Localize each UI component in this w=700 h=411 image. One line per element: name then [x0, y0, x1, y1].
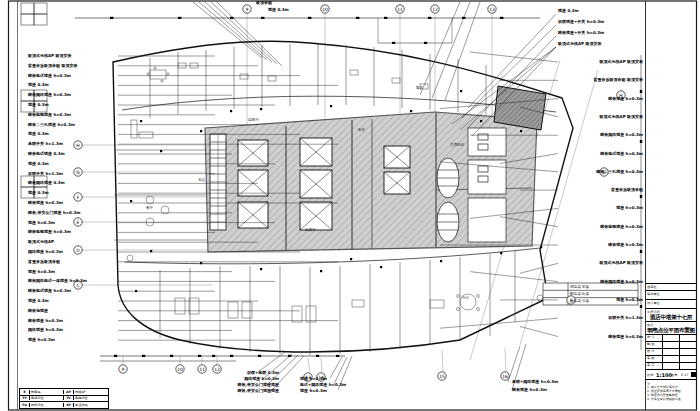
annotation-label: 插座 h=0.3m: [28, 270, 55, 275]
legend-table: E 配电箱 AP 无线AP TP 电话插座 TV 电视插座 TO 网络插座 SP…: [19, 388, 109, 409]
svg-text:E: E: [77, 220, 80, 225]
annotation-label: 暗装网络插座 h=0.3m: [560, 280, 643, 285]
margin-boxes: [21, 3, 47, 198]
grid-bubble: 15: [438, 372, 446, 380]
legend-name: 电话插座: [30, 396, 64, 400]
elevator-shaft: [300, 202, 332, 230]
drawing-name-row: 图名 弱电点位平面布置图: [646, 322, 696, 335]
elevator-shaft: [384, 146, 410, 168]
owner-row: 建设单位: [646, 291, 696, 300]
annotation-label: 单联+网络插座 h=0.3m: [512, 380, 558, 385]
top-dimension-line: [75, 17, 540, 44]
annotation-label: 暗装网络插座 0.3m: [28, 181, 65, 186]
room-label: 办公: [462, 296, 469, 300]
legend-row: TO 网络插座 SP 吸顶音箱: [20, 401, 108, 408]
legend-symbol: TP: [20, 396, 30, 400]
annotation-label: 网络插座 h=0.3m: [28, 250, 63, 255]
annotation-label: 暗装插座+开关 h=0.3m: [558, 31, 604, 36]
grid-bubble: D: [74, 246, 82, 254]
annotation-label: 背景音乐吸顶音箱: [560, 188, 643, 193]
annotation-label: 插座 h=0.3m: [28, 221, 55, 226]
annotation-label: 插座 h=0.3m: [300, 377, 327, 382]
stamp-square: [691, 372, 696, 377]
svg-text:G: G: [76, 170, 80, 175]
annotation-label: 电话+网络插座 h=0.3m: [300, 383, 346, 388]
annotation-label: 双联开关 h=1.3m: [560, 316, 643, 321]
annotation-label: 插座 0.3m: [28, 132, 49, 137]
svg-text:H: H: [76, 143, 79, 148]
grid-bubble: E: [74, 218, 82, 226]
annotation-label: 插座 h=0.3m: [300, 389, 327, 394]
title-block-notes: 注:1. 图中尺寸均以毫米计;2. 点位安装高度详系统图;3. 插座均为安全型插…: [646, 380, 696, 402]
room-label: 机房: [358, 128, 365, 132]
project-name: 酒店中塔第十七层: [647, 314, 695, 322]
svg-text:D: D: [76, 248, 80, 253]
note-table-row: 配电箱 暗装: [570, 292, 589, 296]
annotation-label: 暗装插座 h=0.3m: [560, 97, 643, 102]
room-label: 客房: [416, 86, 423, 90]
annotation-label: 暗装电话插座 h=0.3m: [28, 74, 71, 79]
designer-row: 设计单位: [646, 300, 696, 309]
annotation-label: 双联+单联 0.3m: [196, 371, 279, 376]
annotation-label: 暗装网络电话一体插座 h=0.3m: [28, 279, 87, 284]
annotation-label: 插座 0.3m: [558, 9, 579, 14]
scale-value: 1:100: [656, 372, 670, 378]
svg-text:9: 9: [122, 367, 125, 372]
annotation-label: 插座 h=0.3m: [28, 338, 55, 343]
signature-row: 审 核: [646, 356, 696, 363]
annotation-label: 吸顶音箱: [256, 1, 272, 6]
legend-name: 网络插座: [30, 403, 64, 407]
annotation-label: 网络插座 h=0.3m: [196, 377, 279, 382]
annotation-label: 吸顶式无线AP 吸顶安装: [560, 115, 643, 120]
annotation-label: 插座 0.3m: [28, 299, 49, 304]
annotation-label: 暗装电视插座 h=0.3m: [28, 230, 71, 235]
elevator-shaft: [300, 170, 332, 198]
annotation-label: 双联插座+开关 h=0.3m: [558, 20, 604, 25]
annotation-label: 插座 0.3m: [28, 162, 49, 167]
grid-bubble: 16: [501, 372, 509, 380]
annotation-label: 背景音乐吸顶音箱: [28, 260, 60, 265]
annotation-label: 暗装电话插座 0.3m: [28, 152, 65, 157]
grid-bubble: 10: [176, 365, 184, 373]
annotation-label: 暗装网络插座 h=0.3m: [560, 133, 643, 138]
annotation-label: 插座 0.3m: [28, 83, 49, 88]
legend-row: TP 电话插座 TV 电视插座: [20, 395, 108, 402]
legend-symbol: E: [20, 390, 30, 394]
grid-bubble: G: [74, 168, 82, 176]
signature-row: 制 图: [646, 342, 696, 349]
room-label: 电梯厅: [248, 118, 259, 122]
legend-name: 吸顶音箱: [74, 403, 107, 407]
note-table-row: 弱电箱 明装: [570, 285, 589, 289]
room-label: 空调机房: [450, 143, 464, 147]
signature-row: 校 对: [646, 349, 696, 356]
project-name-row: 工程名称 酒店中塔第十七层: [646, 309, 696, 322]
svg-text:10: 10: [177, 367, 183, 372]
annotation-label: 暗装电视插座 h=0.3m: [28, 113, 71, 118]
grid-bubble: 13: [488, 5, 496, 13]
elevator-shaft: [238, 140, 268, 166]
annotation-label: 吸顶式无线AP 吸顶安装: [558, 42, 601, 47]
annotation-label: 暗装电话插座 h=0.3m: [560, 152, 643, 157]
note-line: 4. 具体位置以装修图为准。: [647, 397, 695, 401]
core-rooms: [468, 128, 506, 242]
svg-text:12: 12: [432, 7, 438, 12]
drawing-sheet: 910111213910111213141516HGFEDCHGF 吸顶式无线A…: [0, 0, 700, 411]
annotation-label: 暗装,带安全门插座插座: [196, 383, 279, 388]
grid-bubble: 9: [119, 365, 127, 373]
annotation-label: 暗装电话插座 h=0.3m: [28, 289, 71, 294]
signature-row: 设 计: [646, 335, 696, 342]
room-label: 餐厅: [146, 206, 153, 210]
annotation-label: 暗装插座 h=0.3m: [28, 319, 63, 324]
annotation-label: 暗装,带安全门插座 h=0.3m: [28, 211, 80, 216]
svg-text:11: 11: [397, 7, 403, 12]
annotation-label: 暗装插座 h=0.3m: [512, 388, 547, 393]
elevator-shaft: [384, 172, 410, 194]
svg-text:F: F: [77, 195, 80, 200]
number-label: 图号: [670, 373, 680, 377]
annotation-label: 暗装电视插座 h=0.3m: [560, 225, 643, 230]
svg-text:10: 10: [322, 7, 328, 12]
scale-label: 比例: [646, 373, 656, 377]
legend-symbol: TO: [20, 403, 30, 407]
annotation-label: 插座 0.3m: [28, 191, 49, 196]
svg-text:13: 13: [489, 7, 495, 12]
elevator-shaft: [238, 170, 268, 196]
annotation-label: 插座 0.3m: [268, 8, 289, 13]
signature-rows: 设 计制 图校 对审 核审 定: [646, 335, 696, 370]
annotation-label: 暗装网络插座 h=0.3m: [28, 93, 71, 98]
grid-bubble: H: [74, 141, 82, 149]
legend-name: 电视插座: [74, 396, 107, 400]
annotation-label: 网络插座 h=0.3m: [28, 328, 63, 333]
annotation-label: 暗装插座 h=0.3m: [28, 201, 63, 206]
legend-name: 无线AP: [74, 390, 107, 394]
annotation-label: 暗装插座 h=0.3m: [560, 335, 643, 340]
annotation-label: 插座 0.3m: [28, 103, 49, 108]
scale-row: 比例 1:100 图号 E-17: [646, 370, 696, 380]
annotation-label: 吸顶式无线AP 吸顶安装: [560, 261, 643, 266]
svg-text:16: 16: [502, 374, 508, 379]
annotation-label: 暗装地插座: [28, 309, 48, 314]
annotation-label: 吸顶式无线AP 吸顶安装: [28, 54, 71, 59]
sign-row: 会签栏: [646, 284, 696, 291]
grid-bubble: F: [74, 193, 82, 201]
svg-text:15: 15: [439, 374, 445, 379]
title-block: 会签栏 建设单位 设计单位 工程名称 酒店中塔第十七层 图名 弱电点位平面布置图…: [646, 283, 696, 411]
grid-bubble: 9: [243, 5, 251, 13]
legend-symbol: SP: [64, 403, 74, 407]
drawing-name: 弱电点位平面布置图: [647, 327, 695, 335]
note-table-row: 接线箱 吊装: [570, 299, 589, 303]
room-label: 电梯厅: [305, 228, 316, 232]
room-label: 走道: [198, 178, 205, 182]
annotation-label: 暗装,带安全门插座插座: [196, 389, 279, 394]
legend-symbol: TV: [64, 396, 74, 400]
annotation-label: 背景音乐吸顶音箱 吸顶安装: [560, 78, 643, 83]
annotation-label: 单联开关 h=1.3m: [28, 142, 63, 147]
grid-bubble: 12: [431, 5, 439, 13]
legend-name: 配电箱: [30, 390, 64, 394]
annotation-label: 暗装二三孔插座 h=0.3m: [560, 170, 643, 175]
annotation-label: 吸顶式无线AP: [28, 240, 54, 245]
annotation-label: 暗装插座 h=0.3m: [560, 243, 643, 248]
legend-symbol: AP: [64, 390, 74, 394]
signature-row: 审 定: [646, 363, 696, 370]
annotation-label: 插座 h=0.3m: [560, 206, 643, 211]
annotation-label: 吸顶式无线AP 吸顶安装: [560, 60, 643, 65]
elevator-shaft: [238, 202, 268, 228]
annotation-label: 暗装二三孔插座 h=0.3m: [28, 123, 75, 128]
annotation-label: 背景音乐吸顶音箱 吸顶安装: [28, 64, 77, 69]
grid-bubble: 10: [321, 5, 329, 13]
legend-row: E 配电箱 AP 无线AP: [20, 389, 108, 395]
number-value: E-17: [680, 373, 690, 377]
annotation-label: 双联开关 h=1.3m: [28, 172, 63, 177]
svg-text:9: 9: [246, 7, 249, 12]
elevator-shaft: [300, 138, 332, 166]
grid-bubble: 11: [396, 5, 404, 13]
